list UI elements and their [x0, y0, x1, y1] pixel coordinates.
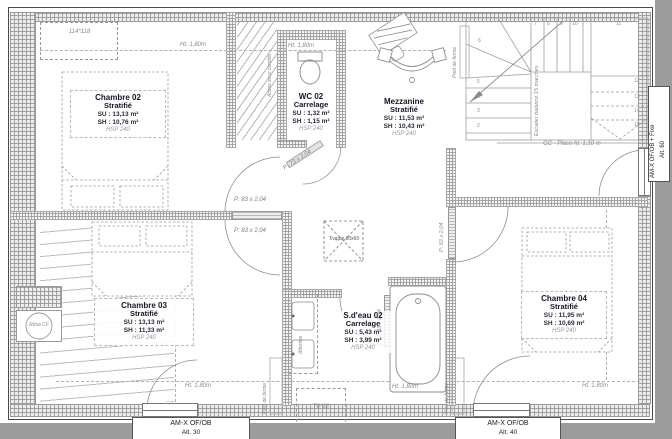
height-note-3: Ht. 1,80m	[185, 383, 211, 389]
room-label-wc02: WC 02 Carrelage SU : 1,32 m² SH : 1,15 m…	[280, 92, 342, 134]
room-label-chambre02: Chambre 02 Stratifié SU : 13,13 m² SH : …	[70, 90, 166, 138]
truss-foot-label-top: Pied de ferme	[452, 47, 458, 78]
room-label-chambre03: Chambre 03 Stratifié SU : 13,13 m² SH : …	[94, 298, 194, 346]
door-label-ch02: P: 83 x 2,04	[234, 197, 266, 203]
door-label-ch04: P: 83 x 2,04	[439, 223, 445, 252]
room-hsp: HSP 240	[366, 131, 442, 139]
attic-access-label: Accès sous comble	[267, 54, 273, 97]
window-alt: Alt. 30	[133, 429, 249, 437]
bed-chambre03	[92, 222, 192, 296]
stair-section-arrow	[470, 22, 562, 102]
stair-step-number: 15	[634, 122, 640, 128]
stair-step-number: 8	[547, 21, 550, 27]
door-label-ch03: P: 83 x 2,04	[234, 228, 266, 234]
truss-foot-label-right: Pied de ferme	[444, 383, 450, 414]
stair-step-number: 9	[560, 21, 563, 27]
roof-window-bottom-label: 78*98	[300, 404, 342, 410]
room-finish: Stratifié	[72, 102, 164, 111]
stair-note-label: Escalier balancé 15 marches	[534, 65, 540, 136]
room-finish: Carrelage	[280, 101, 342, 110]
trappe-label: Trappe 60x60	[323, 236, 365, 242]
stair-step-number: 10	[572, 21, 578, 27]
height-note-4: Ht. 1,80m	[392, 384, 418, 390]
room-label-sdeau02: S.d'eau 02 Carrelage SU : 5,43 m² SH : 3…	[334, 311, 392, 353]
room-sh: SH : 10,43 m²	[366, 123, 442, 131]
room-su: SU : 5,43 m²	[334, 329, 392, 337]
height-note-5: Ht. 1,80m	[582, 383, 608, 389]
stair-step-number: 13	[634, 94, 640, 100]
desk	[369, 12, 417, 62]
room-finish: Stratifié	[96, 310, 192, 319]
room-label-chambre04: Chambre 04 Stratifié SU : 11,95 m² SH : …	[521, 291, 607, 339]
stair-step-number: 5	[477, 79, 480, 85]
room-finish: Stratifié	[366, 106, 442, 115]
window-label-bottom-right: AM-X OF/OB Alt. 40	[455, 417, 561, 439]
staircase	[466, 18, 648, 143]
room-finish: Carrelage	[334, 320, 392, 329]
room-hsp: HSP 240	[523, 328, 605, 336]
window-right-ref: AM-X OF/OB + Fixe	[650, 124, 656, 178]
room-finish: Stratifié	[523, 303, 605, 312]
attentes-label: Attentes	[298, 336, 304, 354]
stair-step-number: 14	[634, 108, 640, 114]
window-bottom-left	[142, 403, 198, 417]
room-label-mezzanine: Mezzanine Stratifié SU : 11,53 m² SH : 1…	[366, 97, 442, 139]
room-sh: SH : 10,69 m²	[523, 320, 605, 328]
floor-plan: Chambre 02 Stratifié SU : 13,13 m² SH : …	[0, 0, 672, 439]
room-hsp: HSP 240	[96, 335, 192, 343]
stair-step-number: 4	[477, 94, 480, 100]
height-note-2: Ht. 1,80m	[288, 43, 314, 49]
truss-foot-label-left: Pied de ferme	[262, 383, 268, 414]
stair-guard-label: GC - Placo ht. 1,10 m	[543, 141, 601, 147]
door-label-sdeau: 83 x 2,04	[377, 309, 383, 332]
reservation-label: Résa CF	[16, 322, 62, 328]
window-ref: AM-X OF/OB	[456, 418, 560, 429]
room-su: SU : 11,53 m²	[366, 115, 442, 123]
window-label-bottom-left: AM-X OF/OB Alt. 30	[132, 417, 250, 439]
room-su: SU : 1,32 m²	[280, 110, 342, 118]
window-alt: Alt. 40	[456, 429, 560, 437]
room-sh: SH : 11,33 m²	[96, 327, 192, 335]
stair-step-number: 11	[616, 21, 621, 27]
stair-step-number: 6	[478, 38, 481, 44]
room-sh: SH : 10,76 m²	[72, 119, 164, 127]
stair-step-number: 12	[634, 78, 640, 84]
toilet	[298, 52, 322, 84]
room-hsp: HSP 240	[334, 345, 392, 353]
room-su: SU : 13,13 m²	[72, 111, 164, 119]
room-sh: SH : 1,15 m²	[280, 118, 342, 126]
stair-step-number: 7	[534, 21, 537, 27]
plan-linework	[0, 0, 672, 439]
stair-step-number: 3	[477, 108, 480, 114]
window-ref: AM-X OF/OB	[133, 418, 249, 429]
roof-window-top-label: 114*118	[52, 29, 107, 35]
window-bottom-right	[473, 403, 530, 417]
window-right-alt: Alt. 60	[660, 141, 666, 158]
stair-step-number: 2	[477, 123, 480, 129]
room-su: SU : 11,95 m²	[523, 312, 605, 320]
room-sh: SH : 3,99 m²	[334, 337, 392, 345]
bathtub	[390, 286, 446, 392]
height-note-1: Ht. 1,80m	[180, 42, 206, 48]
room-su: SU : 13,13 m²	[96, 319, 192, 327]
room-hsp: HSP 240	[280, 126, 342, 134]
sofa	[378, 48, 447, 83]
room-hsp: HSP 240	[72, 127, 164, 135]
